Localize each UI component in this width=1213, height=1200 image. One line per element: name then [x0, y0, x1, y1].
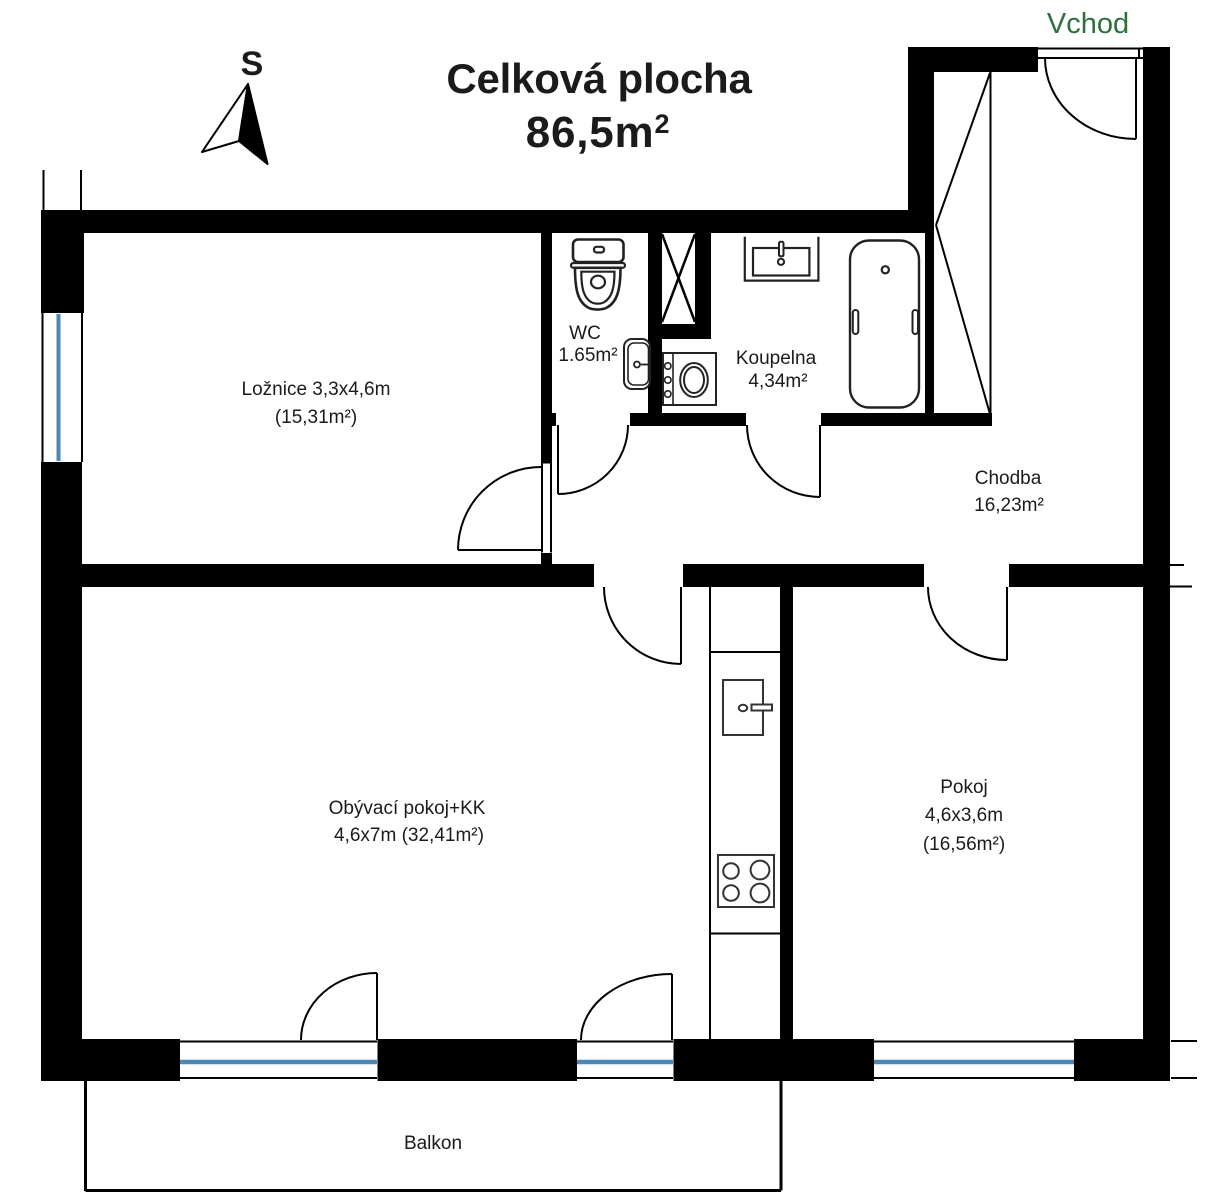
- svg-text:86,5m2: 86,5m2: [526, 108, 671, 157]
- svg-text:Balkon: Balkon: [404, 1133, 462, 1154]
- svg-text:(16,56m²): (16,56m²): [923, 834, 1005, 855]
- svg-text:Obývací pokoj+KK: Obývací pokoj+KK: [329, 798, 486, 819]
- svg-text:Pokoj: Pokoj: [940, 777, 988, 798]
- svg-text:4,34m²: 4,34m²: [748, 371, 807, 392]
- svg-text:WC: WC: [569, 323, 601, 344]
- svg-text:4,6x7m (32,41m²): 4,6x7m (32,41m²): [334, 825, 484, 846]
- svg-text:1.65m²: 1.65m²: [558, 345, 617, 366]
- svg-text:S: S: [241, 45, 264, 83]
- svg-text:Celková plocha: Celková plocha: [446, 55, 752, 102]
- svg-text:(15,31m²): (15,31m²): [275, 407, 357, 428]
- svg-text:Ložnice 3,3x4,6m: Ložnice 3,3x4,6m: [242, 379, 391, 400]
- svg-text:4,6x3,6m: 4,6x3,6m: [925, 805, 1003, 826]
- svg-text:16,23m²: 16,23m²: [974, 495, 1044, 516]
- svg-text:Vchod: Vchod: [1047, 8, 1129, 40]
- svg-text:Koupelna: Koupelna: [736, 348, 817, 369]
- svg-text:Chodba: Chodba: [975, 468, 1042, 489]
